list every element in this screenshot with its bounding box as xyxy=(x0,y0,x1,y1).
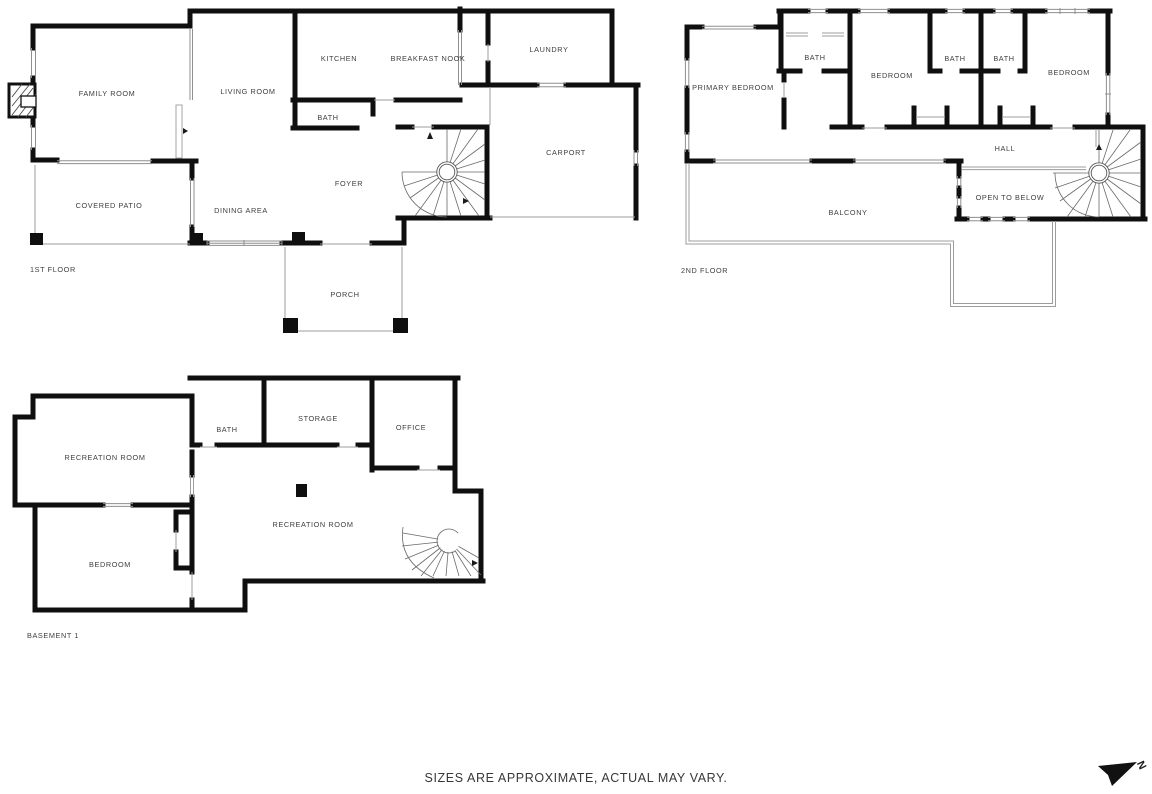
room-label-carport: CARPORT xyxy=(546,148,586,157)
floor1-interior-door xyxy=(176,105,188,158)
floor-plan-basement: RECREATION ROOM BATH STORAGE OFFICE BEDR… xyxy=(15,378,483,640)
room-label-bedroom-right: BEDROOM xyxy=(1048,68,1090,77)
floor2-walls xyxy=(687,11,1145,219)
room-label-bath-3: BATH xyxy=(993,54,1014,63)
room-label-open-to-below: OPEN TO BELOW xyxy=(976,193,1045,202)
room-label-recreation-upper: RECREATION ROOM xyxy=(64,453,145,462)
room-label-bath-1st: BATH xyxy=(317,113,338,122)
room-label-breakfast-nook: BREAKFAST NOOK xyxy=(391,54,466,63)
basement-walls xyxy=(15,378,483,610)
north-label: N xyxy=(1134,759,1148,771)
basement-stairs xyxy=(402,527,481,578)
room-label-recreation-main: RECREATION ROOM xyxy=(272,520,353,529)
room-label-bath-basement: BATH xyxy=(216,425,237,434)
floor2-spiral-stairs xyxy=(1053,130,1141,217)
floor-label-basement: BASEMENT 1 xyxy=(27,631,79,640)
north-arrow: N xyxy=(1098,759,1148,786)
floorplan-svg: FAMILY ROOM LIVING ROOM KITCHEN BREAKFAS… xyxy=(0,0,1152,794)
room-label-foyer: FOYER xyxy=(335,179,363,188)
room-label-balcony: BALCONY xyxy=(828,208,867,217)
disclaimer-text: SIZES ARE APPROXIMATE, ACTUAL MAY VARY. xyxy=(425,771,728,785)
floorplan-sheet: FAMILY ROOM LIVING ROOM KITCHEN BREAKFAS… xyxy=(0,0,1152,794)
floor1-posts xyxy=(30,232,408,333)
floor1-fireplace xyxy=(9,84,36,117)
room-label-dining-area: DINING AREA xyxy=(214,206,268,215)
basement-column xyxy=(296,484,307,497)
room-label-family-room: FAMILY ROOM xyxy=(79,89,136,98)
room-label-covered-patio: COVERED PATIO xyxy=(76,201,143,210)
floor-plan-2nd: PRIMARY BEDROOM BATH BEDROOM BATH BATH B… xyxy=(681,8,1145,307)
room-label-bath-2: BATH xyxy=(944,54,965,63)
room-label-bedroom-basement: BEDROOM xyxy=(89,560,131,569)
room-label-porch: PORCH xyxy=(330,290,359,299)
floor-label-2nd: 2ND FLOOR xyxy=(681,266,728,275)
north-arrow-icon xyxy=(1098,762,1137,786)
room-label-storage: STORAGE xyxy=(298,414,338,423)
room-label-kitchen: KITCHEN xyxy=(321,54,357,63)
basement-windows xyxy=(103,504,133,507)
room-label-living-room: LIVING ROOM xyxy=(220,87,275,96)
room-label-bath-primary: BATH xyxy=(804,53,825,62)
room-label-primary-bedroom: PRIMARY BEDROOM xyxy=(692,83,774,92)
floor-label-1st: 1ST FLOOR xyxy=(30,265,76,274)
room-label-hall: HALL xyxy=(995,144,1016,153)
room-label-office: OFFICE xyxy=(396,423,426,432)
room-label-laundry: LAUNDRY xyxy=(530,45,569,54)
floor2-windows xyxy=(685,8,1111,221)
floor1-spiral-stairs xyxy=(402,129,485,217)
floor-plan-1st: FAMILY ROOM LIVING ROOM KITCHEN BREAKFAS… xyxy=(9,9,638,333)
room-label-bedroom-mid: BEDROOM xyxy=(871,71,913,80)
